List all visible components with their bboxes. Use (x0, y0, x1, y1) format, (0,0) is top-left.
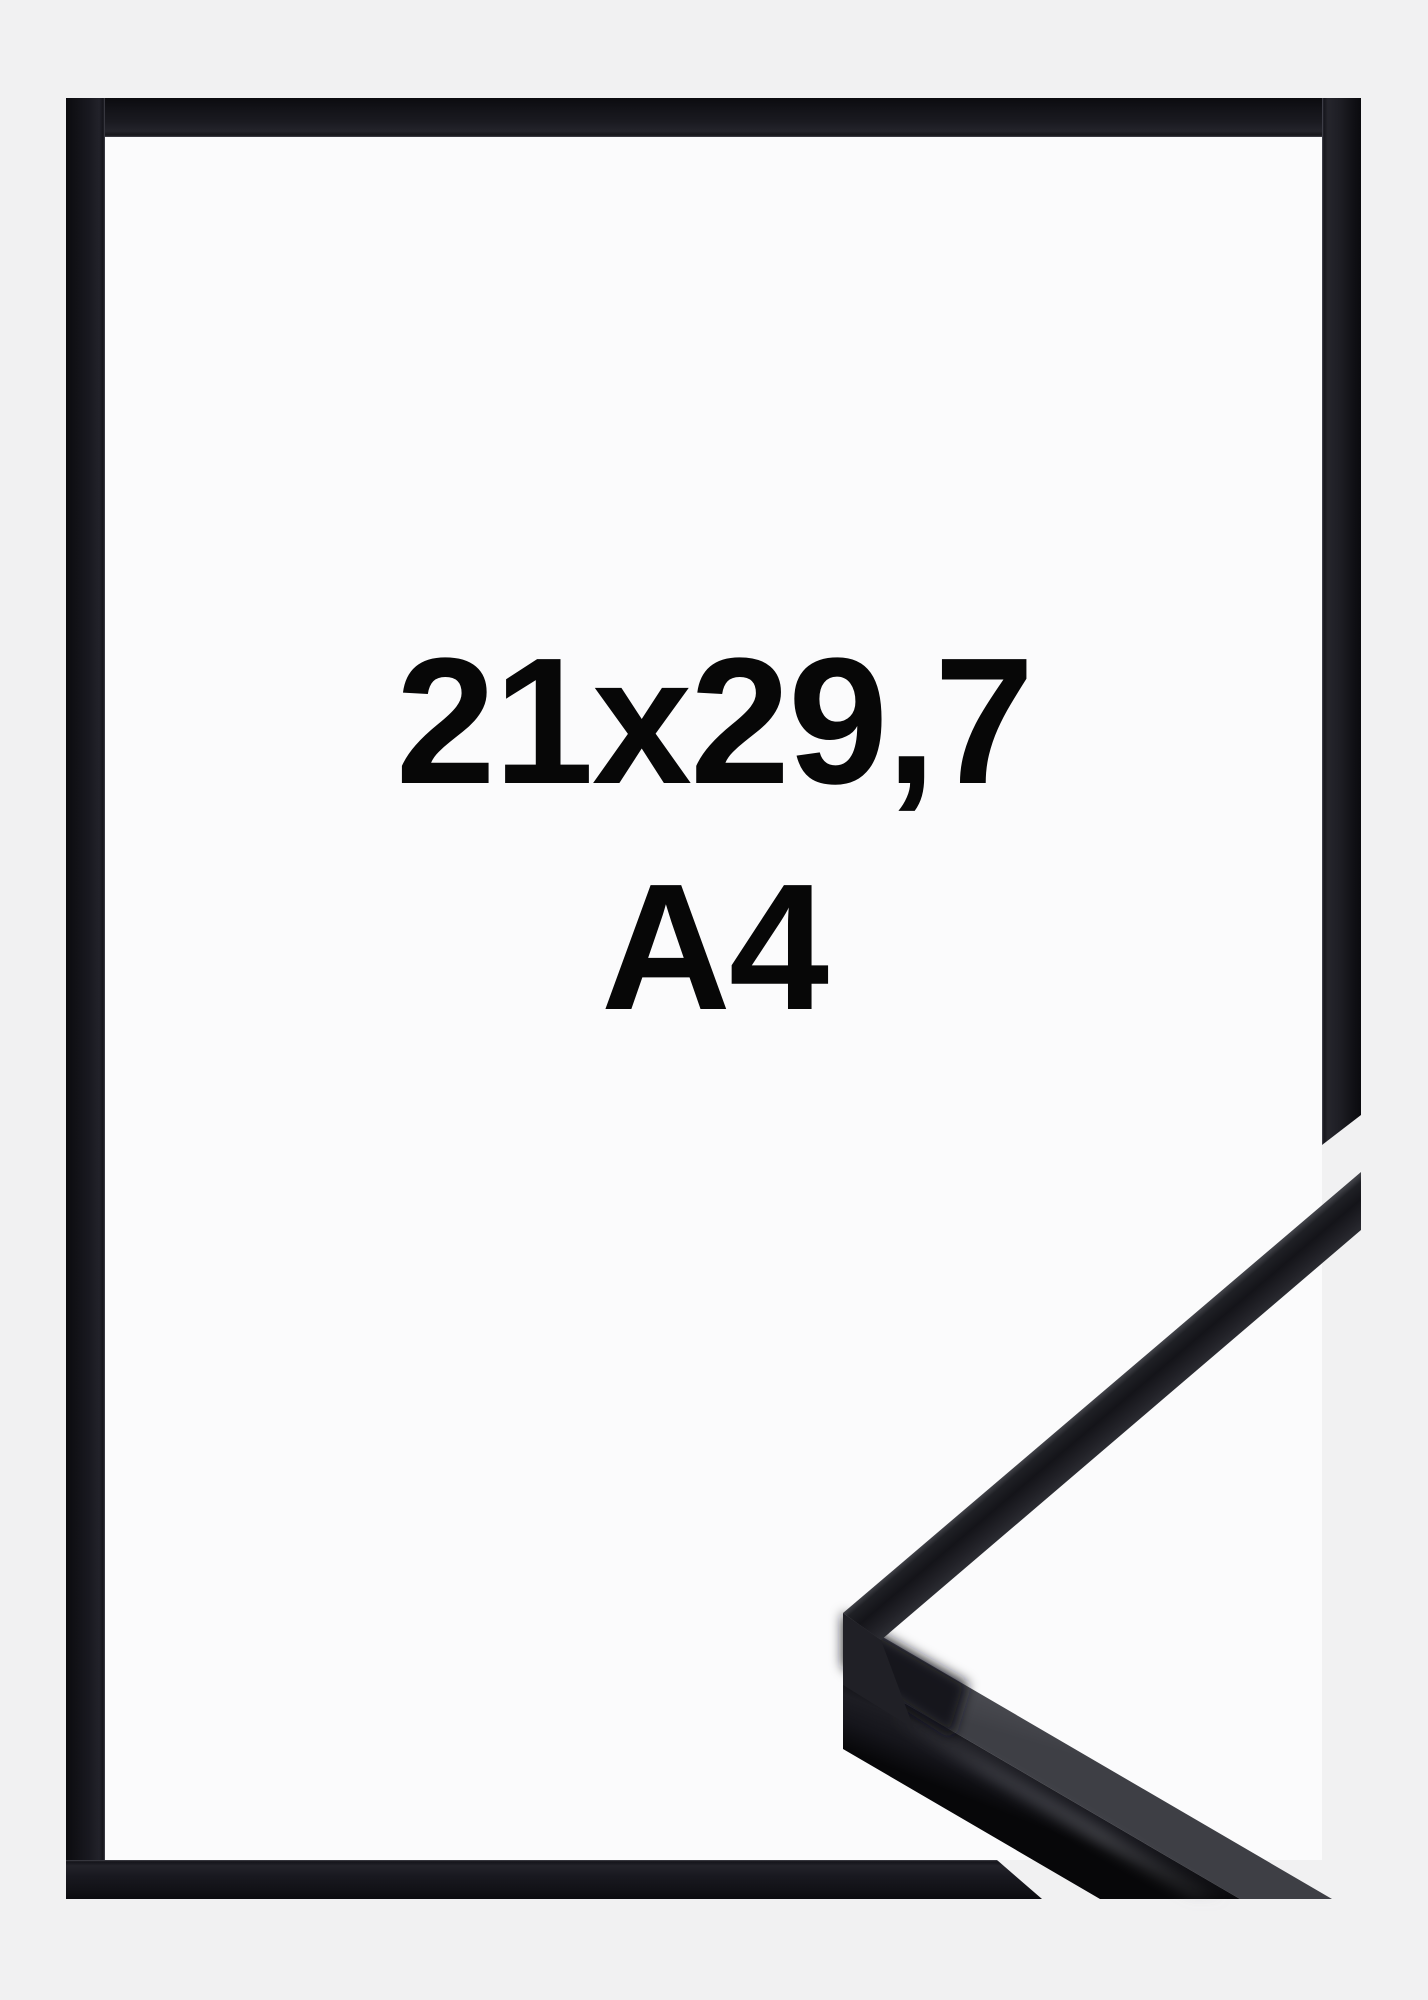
product-image: 21x29,7 A4 (0, 0, 1428, 2000)
format-label: A4 (0, 858, 1428, 1038)
frame-top-bar (66, 98, 1361, 137)
size-label: 21x29,7 (0, 632, 1428, 812)
frame-bottom-bar (66, 1860, 1042, 1899)
